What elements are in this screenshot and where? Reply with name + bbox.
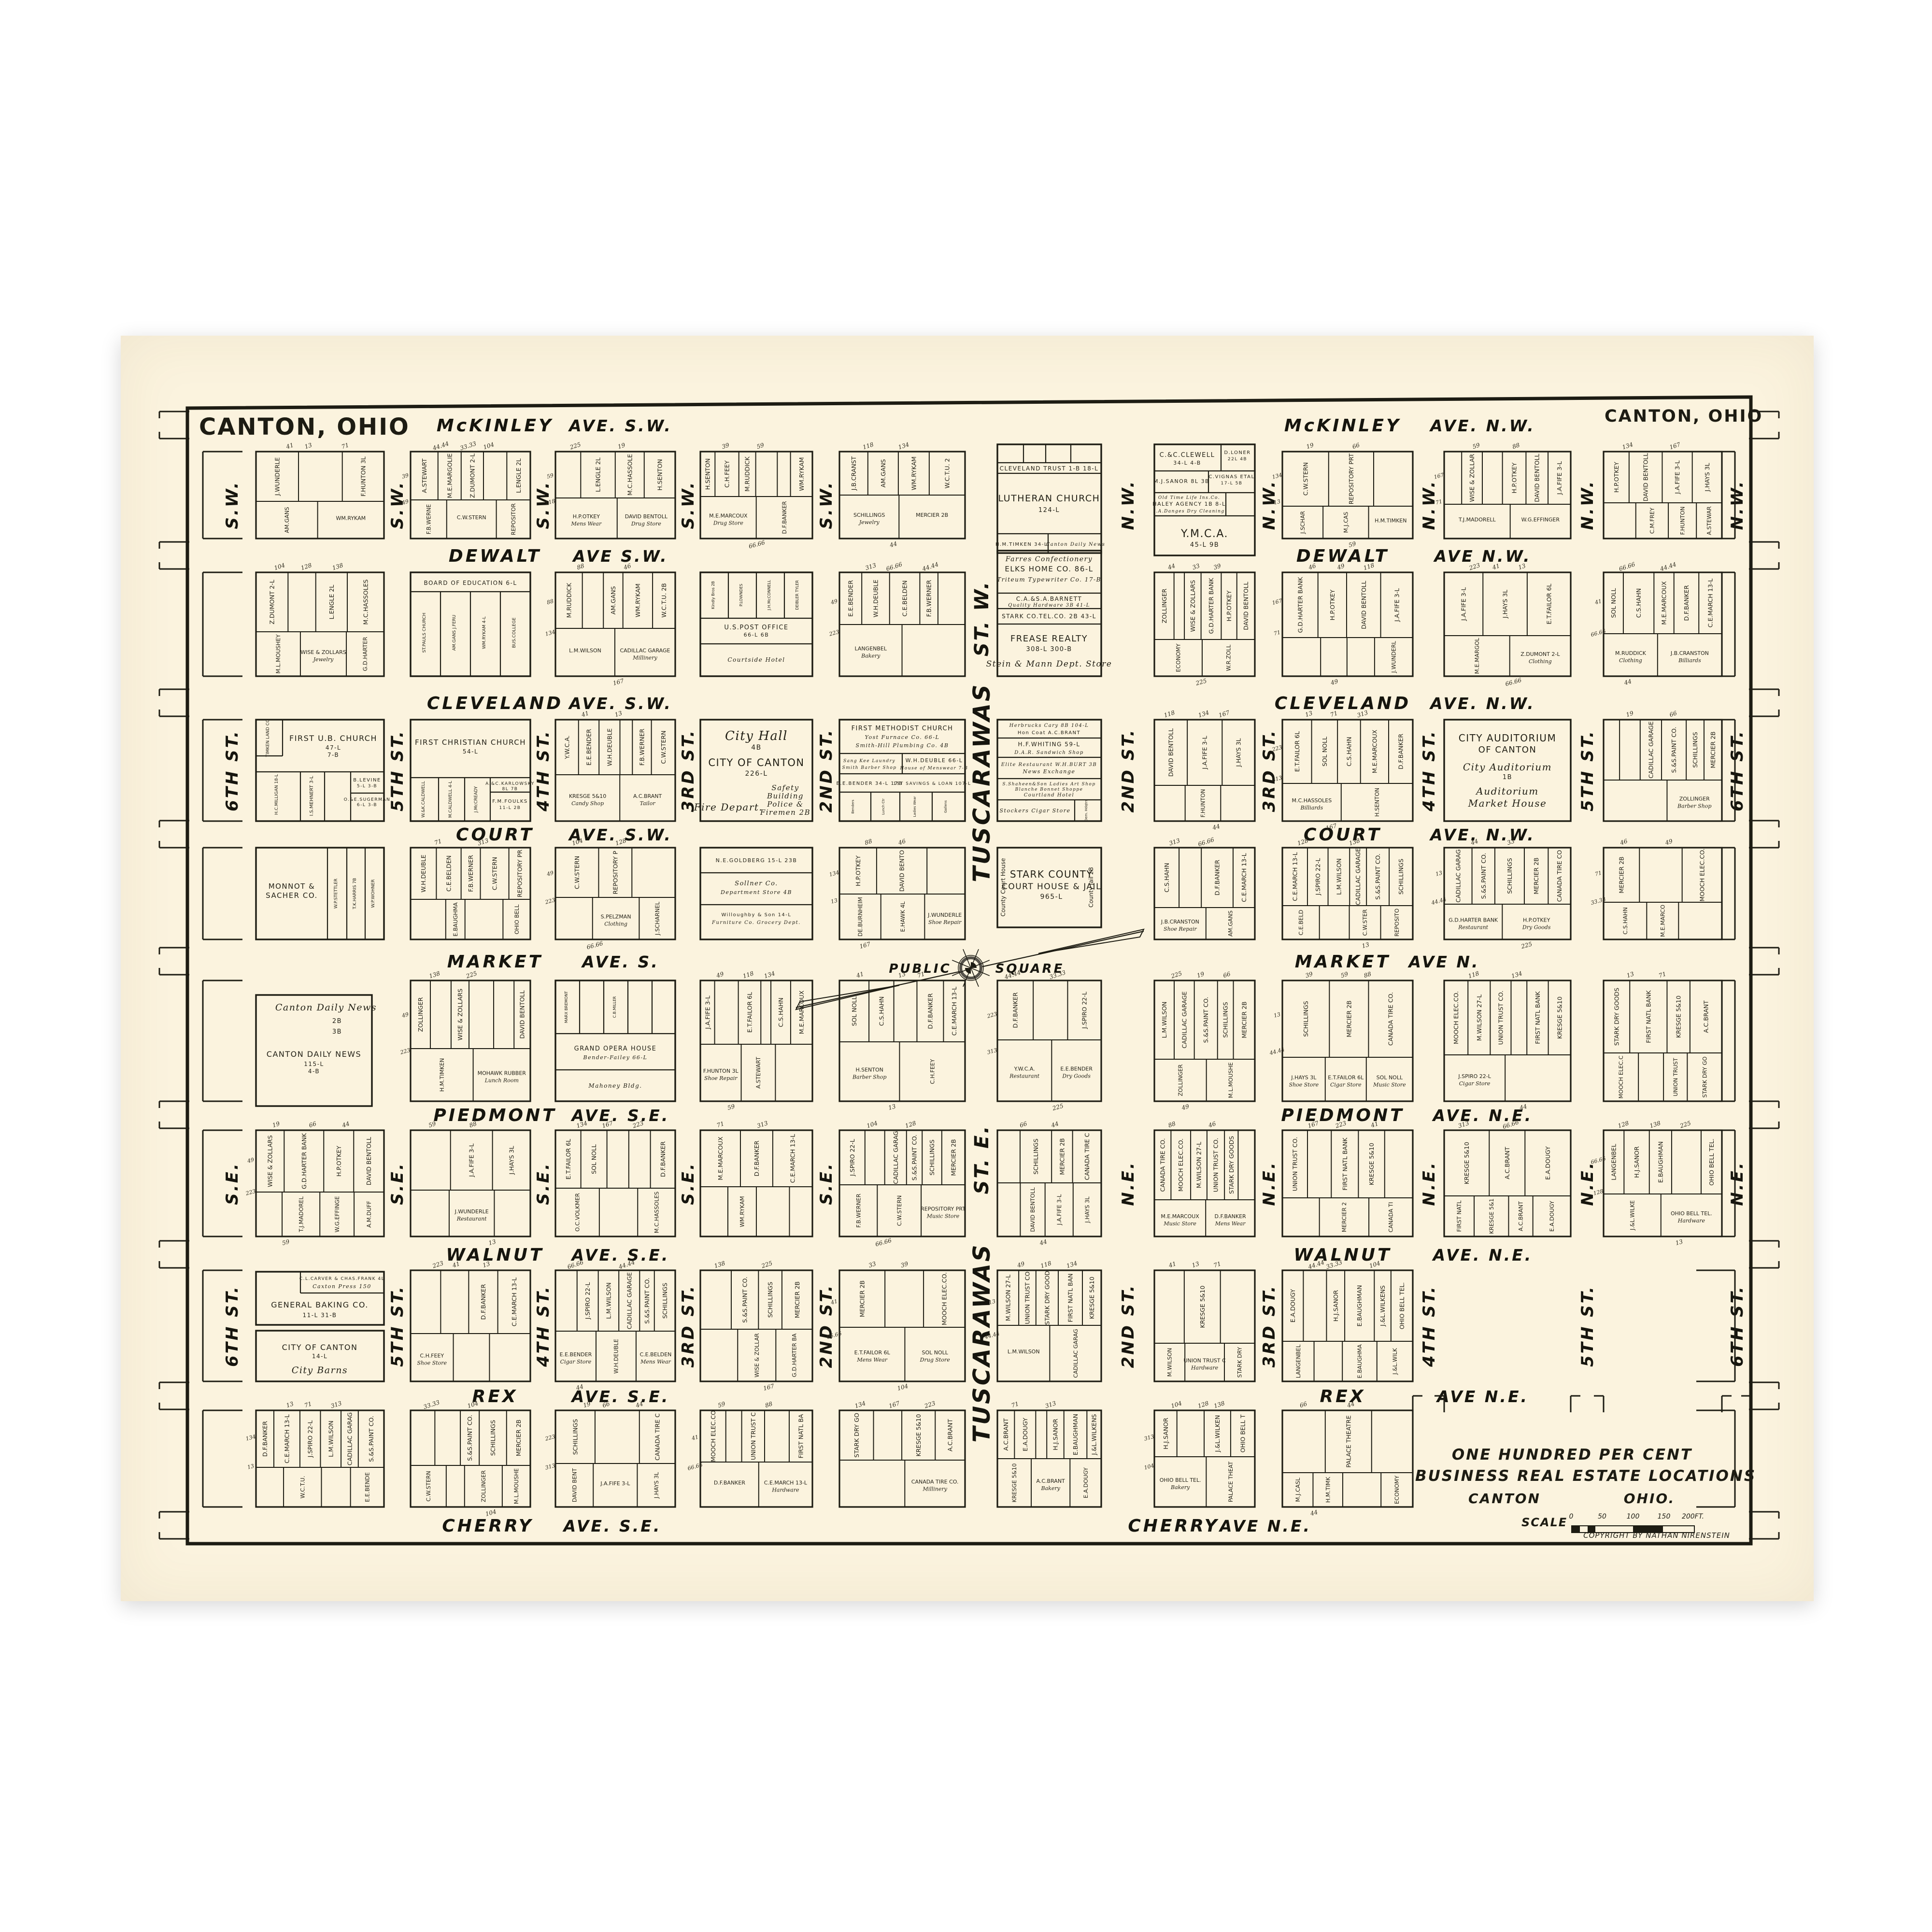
lot-number: 104	[866, 1120, 879, 1129]
city-block: SOL NOLLC.S.HAHND.F.BANKERC.E.MARCH 13-L…	[839, 970, 965, 1111]
parcel-label: Tailor	[640, 800, 656, 807]
parcel-label: J.HAYS 3L	[1704, 463, 1711, 492]
landmark-label: J.H.McCONNELL	[767, 580, 771, 611]
lot-number: 13	[1435, 870, 1443, 878]
parcel-label: H.P.OTKEY	[335, 1146, 342, 1177]
avenue-label: MARKET	[1295, 952, 1391, 972]
lot-number: 167	[612, 677, 625, 687]
street-label: 3RD ST.	[679, 1284, 698, 1368]
lot-number: 66	[1351, 441, 1361, 450]
parcel-label: SCHILLINGS	[1691, 732, 1699, 767]
lot-number: 223	[544, 1434, 556, 1442]
lot-number: 313	[756, 1120, 768, 1130]
parcel-label: E.E.BENDE	[364, 1472, 370, 1502]
parcel-label: C.M.FREY	[1649, 507, 1656, 534]
lot-number: 225	[1051, 1102, 1064, 1112]
landmark-label: Old Time Life Ins.Co.	[1158, 496, 1220, 500]
landmark-label: LUTHERAN CHURCH	[998, 493, 1100, 504]
parcel-label: Lunch Room	[484, 1078, 519, 1084]
parcel-label: SCHILLINGS	[928, 1139, 936, 1175]
lot-number: 66	[1222, 970, 1231, 979]
landmark-label: I.S.MEHNERT 3-L	[309, 776, 314, 816]
avenue-label: DEWALT	[449, 546, 541, 566]
landmark-label: GRAND OPERA HOUSE	[574, 1045, 657, 1052]
lot-number: 13	[830, 897, 838, 905]
lot-number: 41	[855, 970, 865, 979]
parcel-label: FIRST NATL BANK	[1341, 1137, 1349, 1191]
parcel-label: C.W.STERN	[660, 730, 667, 764]
landmark-label: 226-L	[745, 770, 767, 778]
landmark-label: 6-L 3-B	[357, 803, 377, 808]
lot-number: 44	[1038, 1238, 1048, 1247]
parcel-label: J.WUNDERLE	[927, 912, 962, 918]
parcel-label: S.&S.PAINT CO.	[741, 1277, 749, 1323]
parcel-label: M.WILSON 27-L	[1195, 1142, 1203, 1188]
board-of-education: BOARD OF EDUCATION 6-LST.PAULS CHURCHAM.…	[411, 572, 530, 676]
lot-number: 167	[1218, 709, 1230, 719]
street-label: TUSCARAWAS	[968, 1243, 995, 1442]
lot-number: 134	[1065, 1260, 1078, 1269]
parcel-label: H.J.SANOR	[1332, 1290, 1339, 1321]
city-block: STARK DRY GOKRESGE 5&10A.C.BRANTCANADA T…	[839, 1400, 965, 1507]
parcel-label: KRESGE 5&10	[1463, 1142, 1470, 1184]
parcel-label: D.F.BANKER	[480, 1284, 487, 1320]
landmark-label: Courtside Hotel	[727, 656, 785, 663]
parcel-label: W.C.T.U.	[299, 1476, 306, 1499]
lot-number: 88	[764, 1400, 773, 1409]
landmark-label: C.VIGNAS ETAL	[1208, 474, 1254, 480]
parcel-label: G.D.HARTER BA	[791, 1334, 797, 1378]
parcel-label: J.&L.WILKENS	[1091, 1414, 1098, 1456]
avenue-label: McKINLEY	[437, 416, 554, 436]
lot-number: 313	[986, 1047, 998, 1056]
parcel-label: SCHILLINGS	[1302, 1001, 1309, 1037]
city-block: E.E.BENDERW.H.DEUBLEC.E.BELDENF.B.WERNER…	[828, 561, 965, 676]
parcel-label: W.H.DEUBLE	[420, 854, 427, 892]
parcel-label: J.HAYS 3L	[1291, 1075, 1317, 1081]
parcel-label: C.E.MARCH 13-L	[283, 1414, 290, 1463]
parcel-label: D.F.BANKER	[753, 1140, 760, 1176]
city-block: C.W.STERNREPOSITORY PRTJ.SCHARM.J.CASH.M…	[1271, 441, 1413, 549]
parcel-label: AM.GANS	[284, 507, 290, 533]
parcel-label: J.WUNDERL	[1391, 640, 1397, 673]
city-block: S.&S.PAINT CO.SCHILLINGSMERCIER 2BC.W.ST…	[411, 1399, 530, 1518]
parcel-label: CADILLAC GARAGE	[1354, 848, 1362, 905]
parcel-label: M.E.MARCOUX	[1661, 581, 1668, 625]
parcel-label: SOL NOLL	[1610, 588, 1617, 618]
lot-number: 49	[1664, 838, 1674, 846]
parcel-label: J.A.FIFE 3-L	[1393, 588, 1400, 622]
lot-number: 167	[1271, 597, 1283, 606]
lot-number: 13	[1273, 498, 1281, 506]
parcel-label: SOL NOLL	[590, 1144, 597, 1174]
parcel-label: J.WUNDERLE	[455, 1208, 489, 1215]
city-block: H.P.OTKEYDAVID BENTODE.BURNHEIME.HAWK 4L…	[828, 838, 965, 950]
stark-county-courthouse: STARK COUNTYCOURT HOUSE & JAIL965-LCount…	[997, 848, 1101, 927]
lot-number: 44.44	[921, 561, 939, 572]
landmark-label: P.LOWNDES	[739, 584, 743, 607]
parcel-label: A.STEWART	[755, 1056, 762, 1089]
parcel-label: G.D.HARTER BANK	[300, 1133, 308, 1189]
parcel-label: Music Store	[926, 1213, 960, 1220]
parcel-label: STARK DRY GO	[1701, 1056, 1708, 1097]
city-block: C.E.MARCH 13-LJ.SPIRO 22-LL.M.WILSONCADI…	[1282, 837, 1413, 950]
parcel-label: W.C.T.U. 2B	[660, 583, 668, 617]
lot-number: 223	[399, 1047, 411, 1056]
parcel-label: J.B.CRANSTON	[1670, 650, 1709, 656]
lot-number: 13	[1361, 941, 1370, 950]
parcel-label: E.E.BENDER	[1060, 1066, 1093, 1072]
lot-number: 66.66	[1505, 677, 1522, 688]
parcel-label: STARK DRY GO	[853, 1413, 860, 1458]
parcel-label: M.C.HASSOLE	[626, 454, 633, 496]
parcel-label: E.HAWK 4L	[899, 901, 906, 932]
city-block: SCHILLINGSMERCIER 2BCANADA TIRE CO.J.HAY…	[1268, 970, 1413, 1101]
lot-number: 138	[713, 1260, 726, 1270]
landmark-label: County Jail 2B	[1088, 867, 1094, 908]
parcel-label: C.E.MARCH 13-L	[511, 1278, 518, 1326]
street-label: 2ND ST.	[817, 728, 836, 813]
parcel-label: Mens Wear	[1215, 1221, 1246, 1227]
landmark-label: CITY OF CANTON	[282, 1343, 358, 1352]
parcel-label: Drug Store	[920, 1357, 951, 1363]
street-label: 5TH ST.	[388, 1285, 407, 1367]
parcel-label: OHIO BELL TEL.	[1708, 1138, 1715, 1186]
lot-number: 19	[271, 1120, 281, 1129]
street-label: N.E.	[1260, 1161, 1279, 1206]
parcel-label: C.H.FEEY	[929, 1059, 936, 1084]
lot-number: 138	[428, 970, 441, 980]
parcel-label: J.&L.WILK	[1392, 1348, 1398, 1375]
landmark-label: 22L 4B	[1228, 457, 1247, 462]
city-block: MERCIER 2BMOOCH ELEC.CO.E.T.FAILOR 6LMen…	[826, 1260, 965, 1392]
parcel-label: DAVID BENTOLL	[1642, 453, 1649, 501]
parcel-label: LANGENBEL	[855, 646, 887, 652]
parcel-label: A.M.DUFF	[366, 1201, 372, 1227]
us-post-office: U.S.POST OFFICE66-L 6BCourtside HotelKin…	[700, 572, 812, 676]
parcel-label: J.SCHAR	[1299, 511, 1306, 534]
parcel-label: H.J.SANOR	[1051, 1419, 1059, 1450]
city-block: J.A.FIFE 3-LE.T.FAILOR 6LC.S.HAHNM.E.MAR…	[700, 970, 812, 1111]
parcel-label: L.M.WILSON	[1335, 858, 1342, 895]
parcel-label: H.P.OTKEY	[1225, 590, 1233, 621]
parcel-label: S.&S.PAINT CO.	[911, 1135, 918, 1181]
lot-number: 313	[544, 1463, 556, 1471]
parcel-label: L.ENGLE 2L	[595, 457, 602, 492]
city-block: H.J.SANORJ.&L.WILKENOHIO BELL TOHIO BELL…	[1143, 1400, 1255, 1507]
landmark-label: W.P.STETTLER	[334, 879, 339, 909]
street-labels: S.W.6TH ST.S.E.6TH ST.S.W.5TH ST.S.E.5TH…	[231, 0, 1738, 0]
parcel-label: DAVID BENTOLL	[365, 1137, 372, 1185]
parcel-label: MOOCH ELEC.CO.	[941, 1272, 948, 1325]
svg-text:4TH ST.: 4TH ST.	[1428, 0, 1430, 0]
parcel-label: H.M.TIMKEN	[1375, 518, 1406, 524]
city-block: J.SPIRO 22-LL.M.WILSONCADILLAC GARAGES.&…	[555, 1259, 675, 1392]
avenue-label: COURT	[1304, 825, 1382, 845]
landmark-label: ST.PAULS CHURCH	[422, 613, 427, 653]
street-label: 4TH ST.	[1420, 1285, 1439, 1367]
parcel-label: J.&L.WILKEN	[1214, 1415, 1221, 1453]
parcel-label: DAVID BENTOLL	[519, 990, 526, 1038]
parcel-label: M.L.MOUSHE	[1227, 1062, 1234, 1098]
public-square: PUBLICSQUARE	[796, 929, 1144, 1009]
parcel-label: W.H.DEUBLE	[872, 580, 879, 617]
parcel-label: L.ENGLE 2L	[328, 585, 335, 620]
svg-text:3RD ST.: 3RD ST.	[1268, 0, 1270, 0]
parcel-label: DAVID BENTOLL	[1029, 1187, 1036, 1232]
landmark-label: Police &	[767, 800, 804, 809]
parcel-label: D.F.BANKER	[1214, 860, 1221, 895]
parcel-label: S.&S.PAINT CO.	[1374, 853, 1381, 900]
lot-number: 46	[1207, 1120, 1217, 1129]
parcel-label: CADILLAC GARAG	[1072, 1329, 1079, 1378]
lot-number: 59	[756, 441, 765, 450]
street-label: N.W.	[1578, 480, 1597, 530]
landmark-label: Y.M.C.A.	[1180, 528, 1228, 540]
city-block: KRESGE 5&10M.WILSON UNION TRUST CHardwar…	[1154, 1260, 1255, 1381]
lot-number: 49	[401, 1011, 410, 1019]
parcel-label: Z.DUMONT 2-L	[469, 454, 476, 498]
lot-number: 138	[331, 562, 344, 572]
parcel-label: E.BAUGHMAN	[1072, 1414, 1079, 1455]
avenue-label: CLEVELAND	[1275, 694, 1411, 713]
parcel-label: D.F.BANKER	[926, 993, 934, 1029]
parcel-label: M.WILSON 27-L	[1476, 994, 1483, 1041]
street-label: 5TH ST.	[1578, 1285, 1597, 1367]
parcel-label: S.&S.PAINT CO.	[643, 1278, 651, 1324]
street-label: 6TH ST.	[223, 729, 242, 811]
corner-title-right: CANTON, OHIO	[1605, 407, 1763, 426]
lot-number: 118	[862, 441, 874, 451]
parcel-label: S.&S.PAINT CO.	[1670, 727, 1677, 773]
parcel-label: C.S.HAHN	[777, 997, 784, 1027]
lot-number: 33.33	[423, 1399, 440, 1410]
parcel-label: C.S.HAHN	[878, 996, 885, 1026]
parcel-label: MERCIER 2B	[1709, 731, 1717, 768]
parcel-label: DAVID BENTOLL	[625, 513, 668, 520]
landmark-label: Stein & Mann Dept. Store	[986, 659, 1112, 669]
parcel-label: M.WILSON 27-L	[1005, 1275, 1012, 1321]
parcel-label: CADILLAC GARAG	[1454, 849, 1462, 902]
parcel-label: C.E.MARCH 13-L	[1291, 852, 1298, 901]
landmark-label: Department Store 4B	[720, 889, 792, 895]
parcel-label: E.BAUGHMA	[1356, 1344, 1363, 1378]
parcel-label: KRESGE 5&10	[1368, 1143, 1375, 1185]
svg-text:5TH ST.: 5TH ST.	[396, 0, 398, 0]
street-label: 6TH ST.	[1728, 729, 1747, 811]
avenue-label: MARKET	[447, 952, 543, 972]
svg-text:6TH ST.: 6TH ST.	[231, 0, 233, 0]
parcel-label: STARK DRY GOODS	[1228, 1136, 1235, 1194]
landmark-label: STARK CO.TEL.CO. 2B 43-L	[1002, 613, 1096, 620]
lot-number: 71	[716, 1120, 725, 1129]
parcel-label: CANADA TI	[1388, 1202, 1394, 1233]
city-block: DAVID BENTOLLJ.A.FIFE 3-LJ.HAYS 3LF.HUNT…	[1154, 709, 1255, 831]
parcel-label: MOOCH ELEC.C	[1618, 1055, 1624, 1098]
landmark-label: MARX BREMONT	[564, 991, 568, 1023]
parcel-label: G.D.HARTER BANK	[1207, 578, 1215, 634]
landmark-label: Firemen 2B	[760, 808, 810, 817]
first-methodist-church: FIRST METHODIST CHURCHYost Furnace Co. 6…	[837, 720, 971, 821]
lot-number: 71	[1010, 1400, 1020, 1409]
street-label: ST. W.	[971, 580, 993, 656]
lot-number: 223	[923, 1400, 936, 1410]
parcel-label: MOOCH ELEC.CO	[710, 1410, 717, 1462]
copyright-line: COPYRIGHT BY NATHAN NIRENSTEIN	[1579, 1531, 1734, 1540]
parcel-label: Restaurant	[456, 1216, 487, 1222]
parcel-label: WM.RYKAM	[336, 515, 366, 522]
public-square-label: SQUARE	[995, 962, 1065, 976]
parcel-label: Y.W.C.A.	[1014, 1066, 1035, 1072]
lot-number: 44.44	[1659, 561, 1677, 572]
lot-number: 44	[1309, 1508, 1318, 1517]
parcel-label: UNION TRUST CO.	[1292, 1137, 1299, 1191]
lot-number: 134	[854, 1400, 867, 1409]
lot-number: 128	[1197, 1400, 1209, 1410]
avenue-label: AVE. S.	[581, 952, 659, 971]
parcel-label: DAVID BENTO	[898, 850, 906, 892]
lot-number: 225	[1194, 677, 1207, 687]
city-block: ZOLLINGERWISE & ZOLLARSG.D.HARTER BANKH.…	[1154, 562, 1255, 687]
lot-number: 71	[1658, 970, 1667, 979]
parcel-label: J.B.CRANSTON	[1161, 919, 1199, 925]
lot-number: 88	[1511, 441, 1520, 450]
parcel-label: L.M.WILSON	[1008, 1349, 1040, 1355]
avenue-label: CHERRY	[1128, 1516, 1219, 1536]
landmark-label: GENERAL BAKING CO.	[271, 1300, 369, 1309]
city-block: E.T.FAILOR 6LSOL NOLLD.F.BANKERO.C.VOLKM…	[555, 1120, 675, 1236]
svg-text:5TH ST.: 5TH ST.	[1586, 0, 1589, 0]
parcel-label: M.L.MOUSHE	[513, 1468, 520, 1504]
lot-number: 134	[544, 629, 556, 638]
lot-number: 225	[1520, 940, 1533, 950]
parcel-label: T.J.MADORELL	[1458, 517, 1496, 523]
title-city: CANTON	[1463, 1491, 1546, 1506]
parcel-label: Bakery	[1170, 1484, 1190, 1491]
landmark-label: Sollner Co.	[735, 880, 778, 887]
parcel-label: SOL NOLL	[1321, 737, 1328, 767]
parcel-label: M.L.MOUSHEY	[275, 634, 282, 673]
parcel-label: SCHILLINGS	[853, 512, 885, 518]
street-label: 3RD ST.	[1260, 1284, 1279, 1368]
lot-number: 167	[888, 1400, 900, 1410]
title-line2: BUSINESS REAL ESTATE LOCATIONS	[1415, 1467, 1724, 1485]
title-line1: ONE HUNDRED PER CENT	[1425, 1446, 1719, 1463]
parcel-label: H.P.OTKEY	[854, 855, 862, 886]
parcel-label: S.&S.PAINT CO.	[368, 1416, 375, 1462]
parcel-label: J.HAYS 3L	[1235, 738, 1242, 767]
parcel-label: M.E.MARCOUX	[709, 513, 748, 519]
parcel-label: STARK DRY GOODS	[1613, 988, 1620, 1046]
landmark-label: Fire Depart.	[694, 801, 763, 813]
parcel-label: SCHILLINGS	[661, 1283, 668, 1319]
avenue-label: AVE N.	[1407, 952, 1479, 971]
city-block: MOOCH ELEC.CO.M.WILSON 27-LUNION TRUST C…	[1444, 970, 1571, 1111]
parcel-label: C.E.BELDEN	[640, 1351, 672, 1358]
parcel-label: REPOSITO	[1393, 909, 1400, 937]
parcel-label: Shoe Store	[1289, 1082, 1319, 1088]
city-block: MERCIER 2BMOOCH ELEC.CO.C.S.HAHNM.E.MARC…	[1590, 838, 1722, 939]
parcel-label: SCHILLINGS	[489, 1420, 497, 1456]
parcel-label: ZOLLINGER	[417, 997, 424, 1032]
parcel-label: D.F.BANKER	[1215, 1213, 1246, 1220]
parcel-label: D.F.BANKER	[1683, 585, 1690, 621]
city-block: D.F.BANKERJ.SPIRO 22-LY.W.C.A.Restaurant…	[986, 969, 1101, 1112]
parcel-label: Z.DUMONT 2-L	[269, 580, 276, 624]
parcel-label: M.E.MARCOUX	[1161, 1213, 1199, 1220]
landmark-label: OF CANTON	[1478, 745, 1537, 755]
parcel-label: Z.DUMONT 2-L	[1520, 651, 1560, 657]
parcel-label: M.E.MARCOUX	[1371, 729, 1378, 773]
city-block: CADILLAC GARAGES.&S.PAINT CO.SCHILLINGSM…	[1604, 710, 1722, 821]
parcel-label: H.M.TIMK	[1324, 1477, 1331, 1503]
parcel-label: J.HAYS 3L	[508, 1146, 515, 1175]
parcel-label: SCHILLINGS	[1032, 1138, 1039, 1174]
lot-number: 134	[1271, 472, 1283, 481]
landmark-label: ELKS HOME CO. 86-L	[1005, 565, 1093, 573]
parcel-label: MOOCH ELEC.CO.	[1698, 848, 1705, 901]
street-label: 3RD ST.	[679, 729, 698, 812]
lot-number: 128	[300, 562, 313, 572]
lot-number: 313	[1044, 1400, 1057, 1410]
parcel-label: C.S.HAHN	[1635, 588, 1642, 618]
parcel-label: Mens Wear	[571, 521, 602, 527]
landmark-label: M.J.SANOR 8L 3B	[1153, 478, 1209, 484]
parcel-label: E.T.FAILOR 6L	[1545, 583, 1552, 624]
street-label: S.W.	[817, 481, 836, 529]
parcel-label: J.SPIRO 22-L	[307, 1421, 314, 1458]
parcel-label: Drug Store	[713, 520, 744, 526]
parcel-label: J.SPIRO 22-L	[1314, 858, 1321, 896]
parcel-label: WISE & ZOLLAR	[1468, 454, 1476, 502]
city-block: D.F.BANKERC.E.MARCH 13-LC.H.FEEYShoe Sto…	[411, 1260, 530, 1381]
lot-number: 46	[897, 838, 907, 846]
lot-number: 223	[431, 1260, 444, 1270]
parcel-label: Millinery	[632, 655, 657, 661]
landmark-label: Lunch Ctr	[881, 798, 885, 815]
parcel-label: MERCIER 2B	[794, 1281, 801, 1318]
parcel-label: CANADA TIRE C	[1083, 1133, 1091, 1180]
landmark-label: Caxton Press 150	[313, 1283, 371, 1290]
lot-number: 66.66	[875, 1237, 893, 1248]
landmark-label: FREASE REALTY	[1010, 634, 1088, 644]
svg-text:2ND ST.: 2ND ST.	[825, 0, 827, 0]
elks-frease-block: Farres ConfectioneryELKS HOME CO. 86-LTr…	[986, 551, 1112, 676]
street-label: 5TH ST.	[388, 729, 407, 811]
svg-text:6TH ST.: 6TH ST.	[1736, 0, 1738, 0]
parcel-label: J.SPIRO 22-L	[849, 1139, 856, 1177]
lot-number: 128	[1617, 1120, 1630, 1130]
street-label: S.W.	[679, 481, 698, 529]
parcel-label: Jewelry	[313, 656, 334, 663]
parcel-label: OHIO BELL TEL.	[1398, 1282, 1406, 1330]
lot-number: 134	[763, 970, 776, 980]
lot-number: 313	[865, 562, 877, 572]
parcel-label: J.A.FIFE 3-L	[1460, 587, 1467, 621]
avenue-label: REX	[1320, 1387, 1365, 1406]
lot-number: 104	[467, 1400, 479, 1409]
landmark-label: 5-L 3-B	[357, 784, 377, 789]
landmark-label: Canton Daily News	[275, 1002, 377, 1013]
parcel-label: C.S.HAHN	[1622, 907, 1629, 934]
street-label: 5TH ST.	[1578, 729, 1597, 811]
parcel-label: M.E.MARCOUX	[717, 1136, 724, 1180]
parcel-label: UNION TRUST C	[1183, 1358, 1226, 1364]
landmark-label: Smith-Hill Plumbing Co. 4B	[856, 742, 949, 749]
city-block: A.C.BRANTE.A.DOUGYH.J.SANORE.BAUGHMANJ.&…	[997, 1400, 1101, 1507]
parcel-label: W.G.EFFINGER	[1521, 517, 1560, 523]
parcel-label: CADILLAC GARAG	[892, 1131, 899, 1184]
